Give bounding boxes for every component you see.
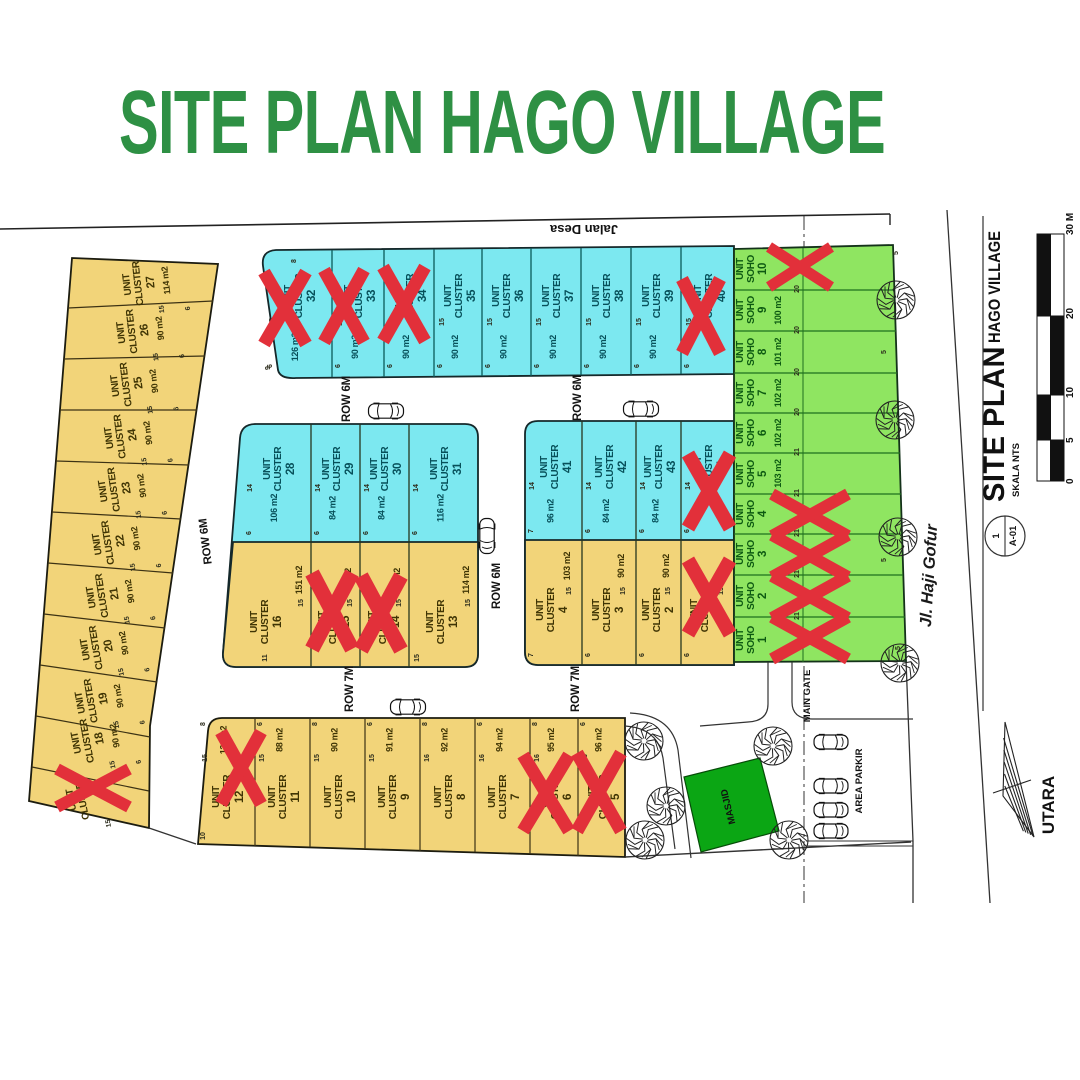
svg-text:92 m2: 92 m2 [440,728,450,752]
svg-text:90 m2: 90 m2 [548,335,558,359]
svg-text:6: 6 [684,364,691,368]
svg-text:A-01: A-01 [1008,525,1019,546]
svg-text:84 m2: 84 m2 [601,499,611,523]
svg-text:6: 6 [684,653,691,657]
svg-text:21: 21 [794,612,801,620]
svg-text:15: 15 [636,318,643,326]
svg-text:UTARA: UTARA [1039,776,1058,834]
svg-text:15: 15 [109,760,117,769]
svg-text:6: 6 [335,364,342,368]
svg-text:6: 6 [485,364,492,368]
svg-text:91 m2: 91 m2 [385,728,395,752]
svg-text:7: 7 [528,653,535,657]
svg-text:14: 14 [586,482,593,490]
svg-text:114 m2: 114 m2 [461,566,471,594]
svg-text:15: 15 [105,819,113,828]
svg-text:15: 15 [314,754,321,762]
svg-text:95 m2: 95 m2 [546,728,556,752]
svg-text:6: 6 [387,364,394,368]
svg-text:16: 16 [534,754,541,762]
svg-text:15: 15 [202,754,209,762]
svg-text:5: 5 [893,251,900,255]
svg-text:94 m2: 94 m2 [495,728,505,752]
svg-text:90 m2: 90 m2 [499,335,509,359]
svg-text:ROW 7M: ROW 7M [570,666,582,712]
svg-text:21: 21 [794,489,801,497]
svg-text:20: 20 [794,408,801,416]
svg-text:103 m2: 103 m2 [562,551,572,580]
svg-text:20: 20 [794,368,801,376]
svg-text:30 M: 30 M [1065,213,1076,235]
svg-text:15: 15 [665,587,672,595]
svg-text:14: 14 [247,484,254,492]
svg-text:90 m2: 90 m2 [648,335,658,359]
svg-text:6: 6 [534,364,541,368]
svg-text:100 m2: 100 m2 [773,296,783,325]
svg-text:15: 15 [347,599,354,607]
svg-text:15: 15 [158,305,166,314]
svg-text:15: 15 [369,754,376,762]
svg-text:106 m2: 106 m2 [269,493,279,522]
svg-text:5: 5 [881,350,888,354]
svg-text:15: 15 [135,510,143,519]
svg-text:6: 6 [634,364,641,368]
svg-text:15: 15 [465,599,472,607]
svg-text:90 m2: 90 m2 [401,335,411,359]
svg-text:21: 21 [794,448,801,456]
svg-text:6: 6 [314,531,321,535]
svg-text:10: 10 [200,832,207,840]
svg-text:8: 8 [312,722,319,726]
svg-text:HAGO VILLAGE: HAGO VILLAGE [985,231,1004,343]
svg-text:103 m2: 103 m2 [773,459,783,488]
svg-text:SITE PLAN HAGO VILLAGE: SITE PLAN HAGO VILLAGE [119,73,885,173]
svg-text:6: 6 [367,722,374,726]
svg-text:14: 14 [364,484,371,492]
svg-text:15: 15 [129,563,137,572]
svg-text:96 m2: 96 m2 [594,728,604,752]
svg-text:6: 6 [584,364,591,368]
svg-text:6: 6 [684,529,691,533]
svg-text:8: 8 [422,722,429,726]
svg-text:101 m2: 101 m2 [773,337,783,366]
svg-text:14: 14 [529,482,536,490]
svg-text:84 m2: 84 m2 [328,496,338,520]
svg-text:5: 5 [881,558,888,562]
svg-text:15: 15 [536,318,543,326]
svg-text:6: 6 [639,653,646,657]
svg-text:8: 8 [532,722,539,726]
svg-text:14: 14 [640,482,647,490]
svg-text:15: 15 [124,616,132,625]
svg-text:SKALA NTS: SKALA NTS [1011,443,1022,497]
svg-text:20: 20 [1065,307,1076,319]
svg-text:15: 15 [141,457,149,466]
svg-text:15: 15 [298,599,305,607]
svg-text:ROW 6M: ROW 6M [491,563,503,609]
svg-text:AREA PARKIR: AREA PARKIR [854,748,865,813]
svg-text:14: 14 [685,482,692,490]
svg-text:15: 15 [487,318,494,326]
svg-text:90 m2: 90 m2 [616,554,626,578]
svg-text:14: 14 [413,484,420,492]
svg-text:MAIN GATE: MAIN GATE [802,670,813,723]
svg-text:6: 6 [363,531,370,535]
svg-text:88 m2: 88 m2 [275,728,285,752]
svg-text:6: 6 [437,364,444,368]
svg-text:15: 15 [396,599,403,607]
svg-text:21: 21 [794,570,801,578]
svg-text:6: 6 [580,722,587,726]
svg-text:15: 15 [620,587,627,595]
svg-text:7: 7 [528,529,535,533]
svg-text:ROW 7M: ROW 7M [344,666,356,712]
svg-text:8: 8 [291,259,298,263]
svg-text:90 m2: 90 m2 [598,335,608,359]
svg-text:15: 15 [586,318,593,326]
svg-text:84 m2: 84 m2 [377,496,387,520]
svg-text:15: 15 [414,654,421,662]
svg-text:96 m2: 96 m2 [546,499,556,523]
svg-text:9: 9 [265,366,272,370]
svg-text:8: 8 [200,722,207,726]
svg-text:14: 14 [315,484,322,492]
svg-text:6: 6 [477,722,484,726]
svg-text:1: 1 [991,533,1002,539]
svg-text:16: 16 [479,754,486,762]
svg-text:102 m2: 102 m2 [773,418,783,447]
svg-text:15: 15 [153,353,161,362]
svg-text:Jalan Desa: Jalan Desa [549,222,618,237]
svg-text:15: 15 [118,667,126,676]
svg-text:90 m2: 90 m2 [450,335,460,359]
svg-text:15: 15 [566,587,573,595]
svg-text:6: 6 [585,653,592,657]
svg-text:116 m2: 116 m2 [436,494,446,522]
svg-text:ROW 6M: ROW 6M [572,375,584,421]
svg-text:151 m2: 151 m2 [294,565,304,594]
svg-text:15: 15 [259,754,266,762]
svg-text:20: 20 [794,326,801,334]
svg-text:5: 5 [1065,437,1076,443]
svg-text:6: 6 [246,531,253,535]
svg-text:15: 15 [439,318,446,326]
svg-text:11: 11 [262,654,269,662]
svg-text:6: 6 [412,531,419,535]
svg-text:20: 20 [794,285,801,293]
svg-text:0: 0 [1065,478,1076,484]
svg-text:84 m2: 84 m2 [651,499,661,523]
svg-text:15: 15 [147,405,155,414]
svg-text:10: 10 [1065,386,1076,398]
svg-text:ROW 6M: ROW 6M [341,376,353,422]
svg-text:21: 21 [794,529,801,537]
svg-text:102 m2: 102 m2 [773,378,783,407]
svg-text:6: 6 [585,529,592,533]
svg-text:90 m2: 90 m2 [330,728,340,752]
svg-text:SITE PLAN: SITE PLAN [978,346,1011,502]
svg-text:6: 6 [257,722,264,726]
svg-text:6: 6 [639,529,646,533]
svg-text:90 m2: 90 m2 [661,554,671,578]
svg-text:16: 16 [424,754,431,762]
